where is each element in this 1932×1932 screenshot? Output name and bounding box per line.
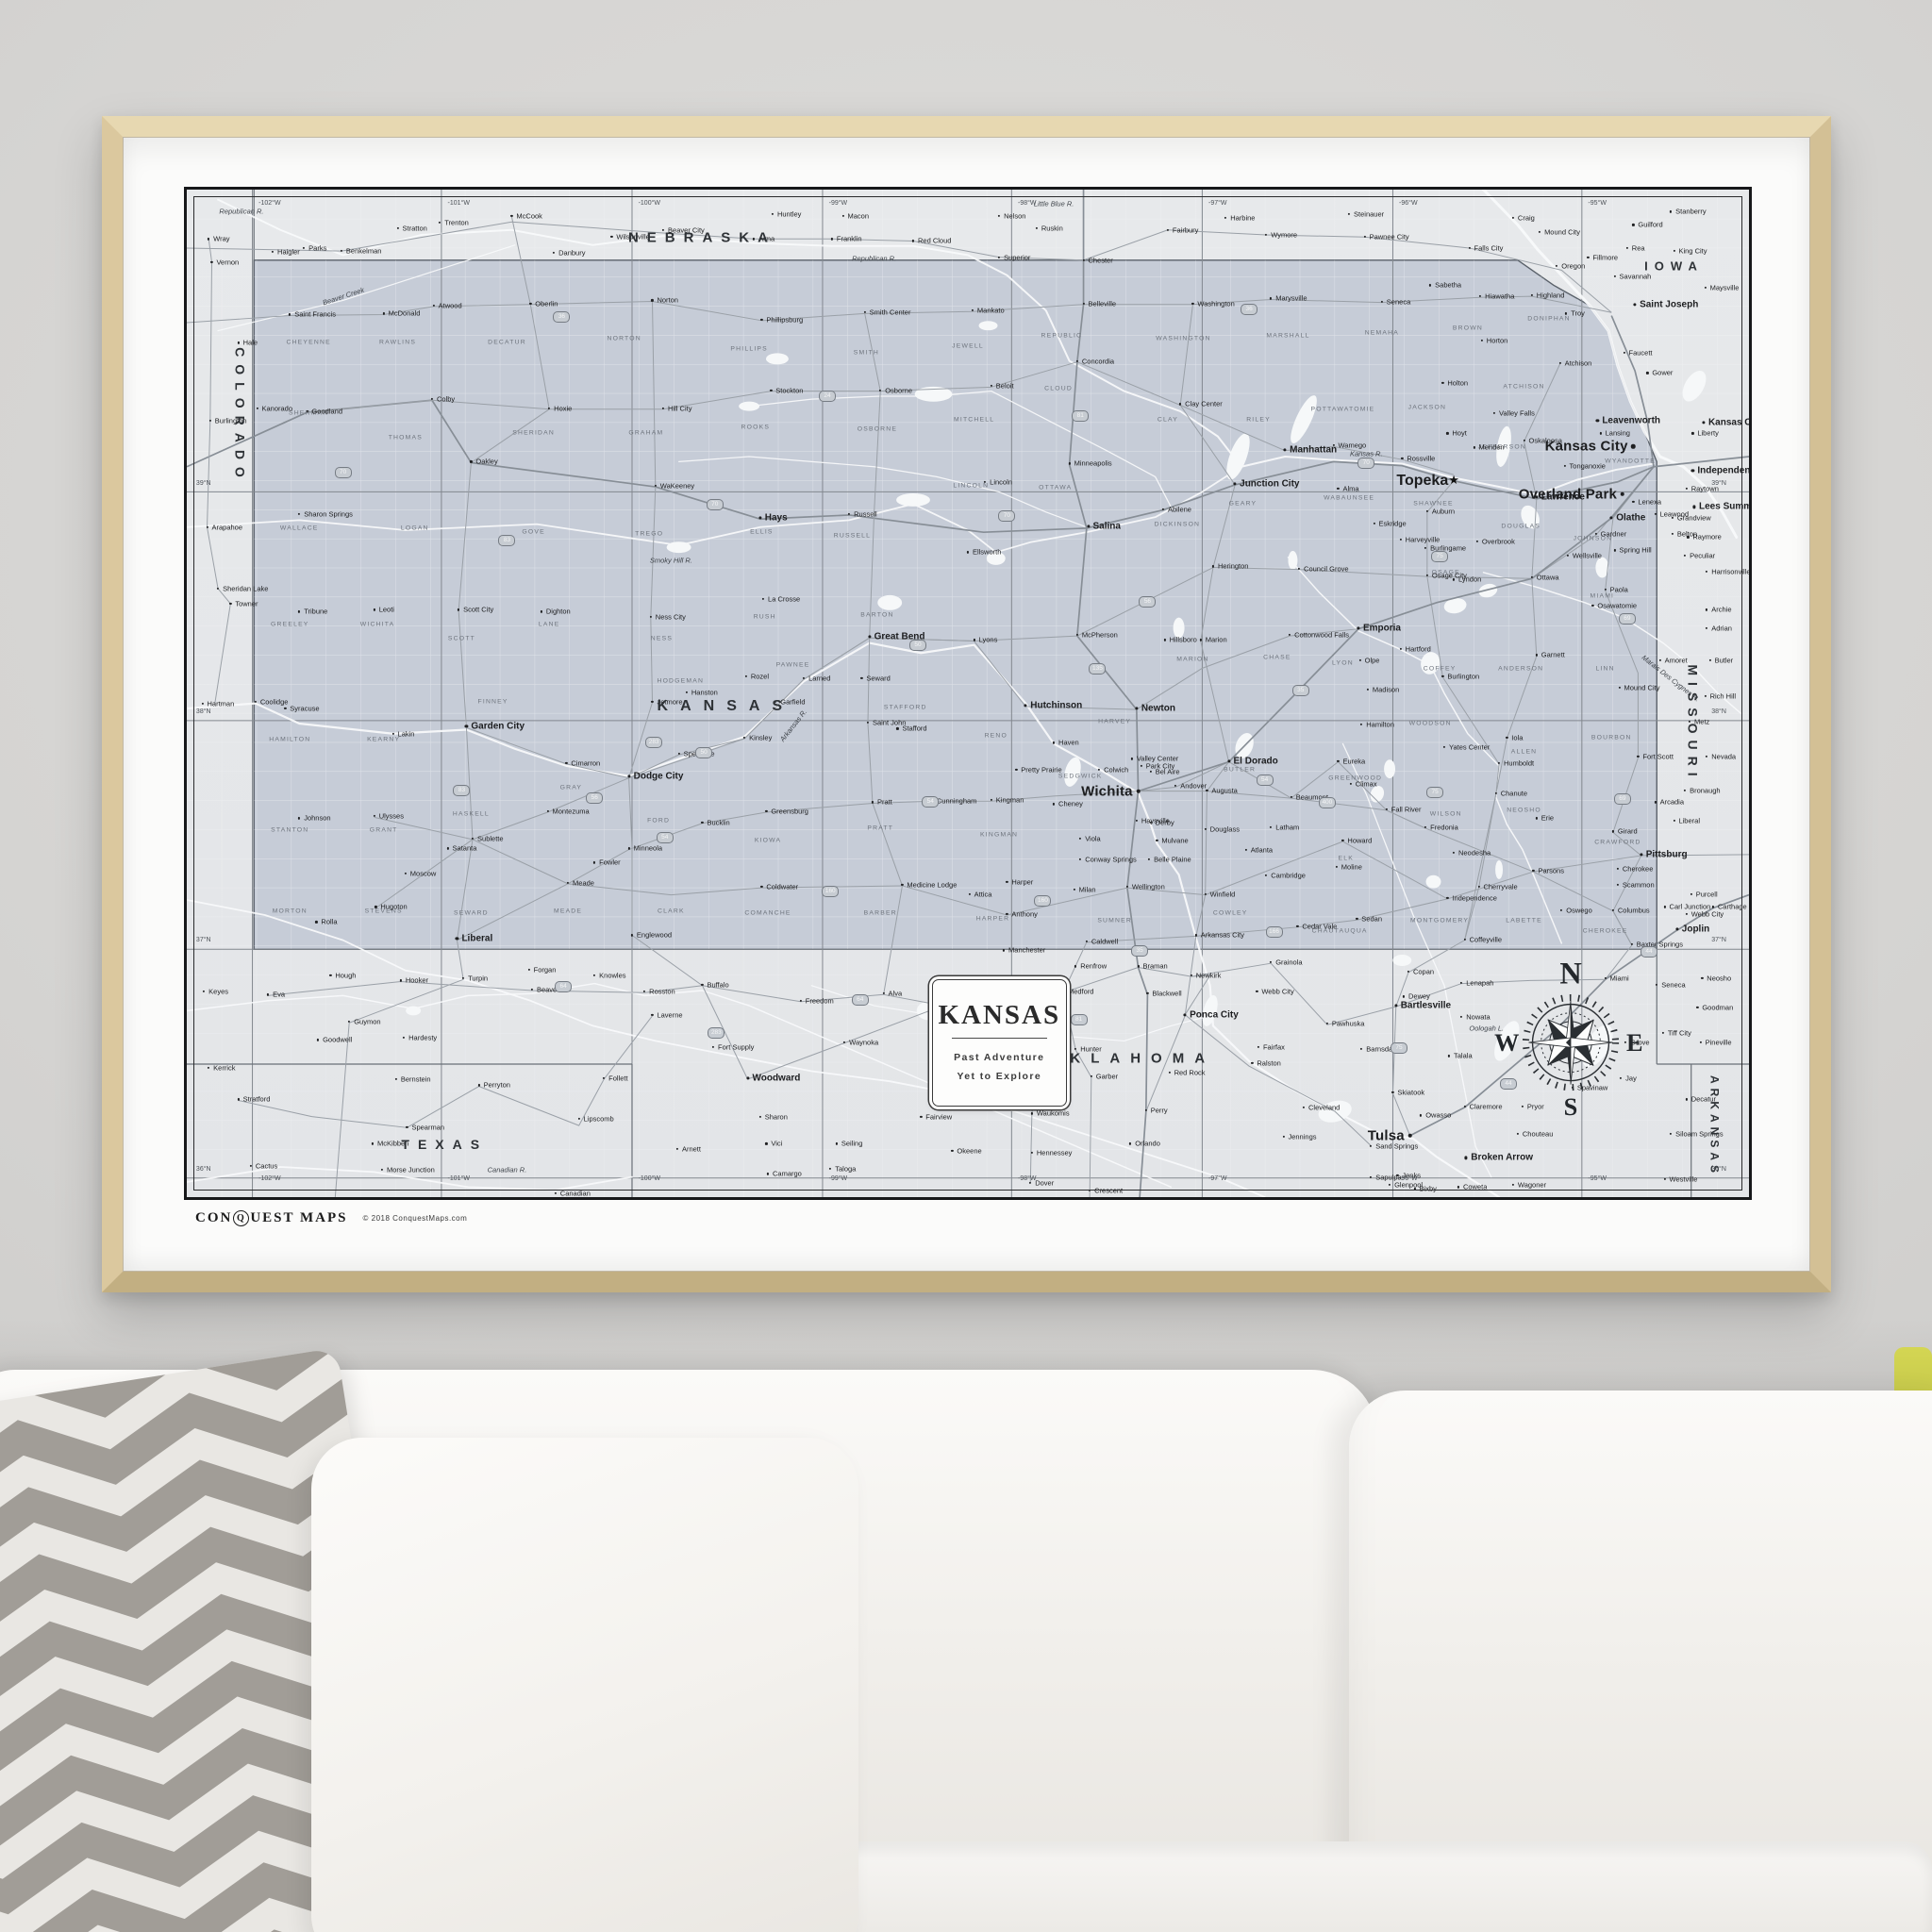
town-label: Forgan: [534, 965, 557, 974]
town-label: Hoyt: [1452, 429, 1466, 438]
town-label: Erie: [1541, 814, 1554, 823]
town-label: Owasso: [1425, 1111, 1451, 1120]
county-label: FINNEY: [478, 698, 508, 705]
county-label: NORTON: [607, 336, 641, 342]
town-label: Broken Arrow: [1471, 1153, 1533, 1163]
county-label: LINN: [1595, 666, 1614, 673]
town-label: Nelson: [1004, 211, 1025, 220]
town-label: Caldwell: [1091, 937, 1118, 945]
highway-shield: 56: [586, 792, 603, 804]
town-label: Hugoton: [380, 903, 407, 911]
town-label: Chouteau: [1523, 1129, 1554, 1138]
highway-shield: 83: [498, 535, 515, 546]
highway-shield: 283: [708, 1027, 724, 1039]
town-label: Purcell: [1696, 890, 1718, 898]
highway-shield: 75: [1426, 787, 1443, 798]
town-label: Viola: [1085, 834, 1101, 842]
town-label: Raymore: [1692, 533, 1721, 541]
town-label: Alva: [889, 990, 903, 998]
highway-shield: 50: [909, 640, 926, 651]
town-label: Minneola: [634, 844, 662, 853]
county-label: MITCHELL: [954, 416, 994, 423]
town-label: Pretty Prairie: [1021, 766, 1061, 774]
town-label: Climax: [1356, 780, 1377, 789]
longitude-label: -99°W: [829, 200, 848, 207]
town-label: Smith Center: [870, 308, 911, 317]
town-label: Atchison: [1565, 358, 1592, 367]
title-subtitle-2: Yet to Explore: [957, 1071, 1041, 1082]
town-label: Hillsboro: [1170, 636, 1197, 644]
town-label: Dewey: [1408, 992, 1430, 1001]
town-label: Fort Scott: [1642, 753, 1674, 761]
latitude-label: 39°N: [1711, 480, 1726, 487]
town-label: Freedom: [806, 996, 834, 1005]
county-label: KIOWA: [755, 837, 781, 843]
town-label: Oskaloosa: [1529, 436, 1562, 444]
county-label: ROOKS: [741, 425, 771, 431]
town-label: Fredonia: [1430, 824, 1458, 832]
county-label: WILSON: [1430, 811, 1462, 818]
town-label: Osawatomie: [1597, 602, 1637, 610]
town-label: Salina: [1092, 521, 1120, 531]
town-label: Seiling: [841, 1140, 863, 1148]
highway-shield: 36: [553, 311, 570, 323]
town-label: Amoret: [1665, 656, 1688, 664]
town-label: Eskridge: [1379, 519, 1407, 527]
town-dot: [1621, 491, 1625, 496]
county-label: REPUBLIC: [1041, 332, 1083, 339]
town-label: Independence: [1697, 465, 1752, 475]
town-label: Norton: [657, 296, 678, 305]
town-label: Valley Falls: [1499, 409, 1535, 418]
longitude-label: -95°W: [1588, 1175, 1607, 1182]
town-label: Winfield: [1210, 890, 1236, 898]
town-label: Hutchinson: [1030, 700, 1082, 710]
longitude-label: -97°W: [1208, 1175, 1227, 1182]
town-label: Bucklin: [707, 818, 729, 826]
county-label: CHEYENNE: [286, 340, 330, 346]
highway-shield: 36: [1241, 304, 1257, 315]
town-label: Waukomis: [1037, 1109, 1070, 1118]
brand-q-icon: Q: [233, 1210, 249, 1226]
town-label: Keyes: [208, 988, 228, 996]
highway-shield: 283: [645, 737, 662, 748]
town-label: Ness City: [656, 612, 686, 621]
town-label: Fairbury: [1173, 225, 1199, 234]
county-label: ALLEN: [1511, 748, 1538, 755]
county-label: DOUGLAS: [1501, 523, 1541, 529]
town-label: Highland: [1537, 291, 1565, 300]
longitude-label: -95°W: [1588, 200, 1607, 207]
town-label: Neodesha: [1458, 848, 1491, 857]
town-label: Pineville: [1706, 1038, 1732, 1046]
county-label: CHASE: [1263, 654, 1291, 660]
town-label: Peculiar: [1690, 551, 1715, 559]
town-label: Seneca: [1387, 297, 1410, 306]
town-label: Sedan: [1361, 915, 1382, 924]
town-label: Huntley: [777, 209, 801, 218]
town-label: Scammon: [1623, 880, 1655, 889]
highway-shield: 35: [1292, 685, 1309, 696]
town-label: Marion: [1206, 636, 1227, 644]
county-label: STAFFORD: [884, 704, 927, 710]
compass-e: E: [1626, 1029, 1643, 1057]
town-label: Garber: [1096, 1072, 1118, 1080]
town-label: Pawhuska: [1332, 1020, 1365, 1028]
highway-shield: 54: [1257, 774, 1274, 786]
county-label: OSBORNE: [858, 426, 897, 433]
town-label: WaKeeney: [660, 481, 694, 490]
county-label: BUTLER: [1224, 767, 1256, 774]
town-label: Mulvane: [1161, 836, 1188, 844]
brand-meta: © 2018 ConquestMaps.com: [363, 1214, 468, 1223]
town-label: Fall River: [1391, 805, 1422, 813]
highway-shield: 64: [555, 981, 572, 992]
county-label: BOURBON: [1591, 734, 1632, 741]
town-label: Turpin: [468, 974, 488, 983]
town-label: Madison: [1373, 685, 1399, 693]
town-label: Saint Francis: [294, 310, 336, 319]
town-label: Superior: [1004, 253, 1030, 261]
town-label: Abilene: [1168, 505, 1191, 513]
town-label: Columbus: [1618, 906, 1650, 914]
town-label: Haven: [1058, 739, 1079, 747]
highway-shield: 81: [1071, 1014, 1088, 1025]
town-label: Parks: [308, 243, 326, 252]
throw-pillow: [311, 1438, 858, 1932]
town-label: Fillmore: [1592, 253, 1618, 261]
county-label: NEOSHO: [1507, 807, 1541, 813]
town-label: Beloit: [996, 382, 1014, 391]
town-label: Haysville: [1141, 816, 1170, 824]
highway-shield: 70: [1357, 458, 1374, 469]
town-label: Webb City: [1261, 988, 1293, 996]
longitude-label: -97°W: [1208, 200, 1227, 207]
town-label: Russell: [854, 509, 877, 518]
town-label: Fairview: [925, 1112, 952, 1121]
county-label: BARBER: [864, 909, 897, 916]
county-label: RILEY: [1246, 416, 1271, 423]
town-label: Garnett: [1541, 651, 1565, 659]
town-label: Braman: [1142, 962, 1167, 971]
county-label: HARVEY: [1098, 718, 1131, 724]
county-label: RENO: [985, 732, 1008, 739]
town-label: Hiawatha: [1485, 292, 1514, 301]
town-label: Hardesty: [408, 1034, 437, 1042]
town-label: Arapahoe: [211, 523, 242, 531]
town-label: Lipscomb: [584, 1114, 614, 1123]
county-label: LYON: [1332, 659, 1354, 666]
longitude-label: -102°W: [258, 200, 280, 207]
compass-w: W: [1494, 1029, 1519, 1057]
town-label: Sublette: [477, 834, 504, 842]
town-label: Oberlin: [535, 299, 558, 308]
county-label: DICKINSON: [1155, 521, 1201, 527]
latitude-label: 37°N: [1711, 937, 1726, 943]
county-label: LINCOLN: [953, 482, 989, 489]
town-label: Atwood: [439, 301, 462, 309]
town-label: Girard: [1618, 827, 1638, 836]
town-label: Stockton: [775, 386, 803, 394]
town-label: Leoti: [379, 606, 394, 614]
capital-star-icon: ★: [1448, 473, 1459, 488]
county-label: ANDERSON: [1498, 666, 1543, 673]
longitude-label: -96°W: [1399, 1175, 1418, 1182]
town-label: Gower: [1652, 369, 1673, 377]
town-label: Hennessey: [1037, 1149, 1073, 1158]
town-label: Stanberry: [1675, 208, 1707, 216]
town-label: Parsons: [1538, 866, 1564, 874]
highway-shield: 70: [335, 467, 352, 478]
highway-shield: 83: [453, 785, 470, 796]
town-label: Greensburg: [771, 807, 808, 815]
town-label: Ralston: [1257, 1058, 1280, 1067]
town-label: Mound City: [1544, 227, 1580, 236]
town-label: Coldwater: [766, 883, 798, 891]
longitude-label: -96°W: [1399, 200, 1418, 207]
town-label: Towner: [235, 599, 258, 608]
highway-shield: 81: [1072, 410, 1089, 422]
town-label: Topeka: [1396, 473, 1448, 490]
town-label: Washington: [1197, 299, 1234, 308]
county-label: HODGEMAN: [657, 678, 704, 685]
highway-shield: 35: [1131, 945, 1148, 957]
town-label: Rea: [1632, 243, 1645, 252]
town-label: Morse Junction: [387, 1166, 435, 1174]
town-label: Latham: [1275, 824, 1299, 832]
county-label: SMITH: [854, 350, 879, 357]
town-label: Stratford: [243, 1095, 271, 1104]
county-label: JACKSON: [1408, 404, 1447, 410]
highway-shield: 75: [1431, 551, 1448, 562]
town-label: Butler: [1715, 656, 1734, 664]
town-label: McPherson: [1082, 631, 1118, 640]
town-label: Jennings: [1288, 1132, 1316, 1141]
town-label: Mankato: [977, 307, 1005, 315]
town-label: Westville: [1670, 1174, 1698, 1183]
town-label: Hartman: [208, 699, 235, 708]
town-label: Conway Springs: [1085, 856, 1137, 864]
town-label: Cedar Vale: [1302, 922, 1337, 930]
town-label: Sharon Springs: [304, 509, 353, 518]
town-label: Concordia: [1082, 357, 1114, 365]
town-label: Manhattan: [1290, 444, 1337, 455]
town-label: Arcadia: [1660, 798, 1684, 807]
town-label: Waynoka: [849, 1038, 878, 1046]
longitude-label: -100°W: [639, 200, 660, 207]
town-label: Eureka: [1342, 757, 1365, 765]
county-label: ELK: [1339, 856, 1354, 862]
town-label: Sabetha: [1435, 281, 1461, 290]
highway-shield: 160: [822, 886, 839, 897]
town-label: Hanston: [691, 688, 718, 696]
county-label: PRATT: [867, 825, 893, 832]
highway-shield: 69: [1619, 613, 1636, 625]
town-label: Auburn: [1432, 507, 1455, 515]
county-label: MORTON: [273, 908, 308, 914]
town-label: Satanta: [453, 844, 477, 853]
county-label: COMANCHE: [744, 909, 791, 916]
town-label: Macon: [847, 211, 869, 220]
town-label: Laverne: [657, 1010, 682, 1019]
highway-shield: 135: [1089, 663, 1106, 675]
town-label: El Dorado: [1234, 756, 1278, 766]
county-label: NEMAHA: [1365, 329, 1399, 336]
highway-shield: 69: [1614, 793, 1631, 805]
town-label: Red Rock: [1174, 1068, 1206, 1076]
town-label: Attica: [974, 890, 992, 898]
town-label: Dodge City: [634, 771, 684, 781]
town-dot: [1631, 444, 1636, 449]
county-label: PAWNEE: [776, 662, 810, 669]
brand-name: CONQUEST MAPS: [195, 1210, 348, 1226]
town-label: Independence: [1452, 893, 1497, 902]
town-label: Red Cloud: [918, 237, 951, 245]
town-label: Cunningham: [937, 797, 977, 806]
county-label: CRAWFORD: [1594, 840, 1641, 846]
county-label: BARTON: [860, 611, 893, 618]
town-label: Osage City: [1432, 572, 1467, 580]
town-label: Leavenworth: [1602, 415, 1660, 425]
state-label: NEBRASKA: [628, 230, 776, 246]
town-label: Marysville: [1275, 294, 1307, 303]
town-label: Follett: [608, 1074, 627, 1082]
town-label: Saint Joseph: [1640, 299, 1698, 309]
town-label: Savannah: [1620, 272, 1652, 280]
county-label: ATCHISON: [1503, 384, 1544, 391]
county-label: HAMILTON: [269, 737, 310, 743]
highway-shield: 50: [695, 747, 712, 758]
town-label: Grandview: [1677, 514, 1711, 523]
latitude-label: 39°N: [196, 480, 211, 487]
town-label: Milan: [1079, 886, 1096, 894]
town-label: Crescent: [1094, 1186, 1123, 1194]
town-label: Oregon: [1561, 262, 1585, 271]
town-label: Nevada: [1711, 753, 1736, 761]
county-label: KEARNY: [367, 737, 400, 743]
town-label: Okeene: [957, 1146, 981, 1155]
town-label: Garden City: [471, 722, 525, 732]
town-label: Syracuse: [290, 705, 319, 713]
county-label: MARSHALL: [1266, 332, 1309, 339]
county-label: GREELEY: [271, 622, 309, 628]
county-label: MONTGOMERY: [1410, 918, 1469, 924]
longitude-label: -98°W: [1018, 1175, 1037, 1182]
county-label: DECATUR: [488, 340, 526, 346]
town-label: Atlanta: [1251, 845, 1273, 854]
highway-shield: 160: [1034, 895, 1051, 907]
county-label: MIAMI: [1591, 593, 1615, 600]
county-label: LANE: [539, 622, 560, 628]
town-label: Bel Aire: [1156, 768, 1180, 776]
town-label: Lawrence: [1541, 491, 1585, 502]
town-label: Adrian: [1711, 624, 1732, 632]
highway-shield: 54: [922, 796, 939, 808]
town-label: Goodwell: [323, 1036, 352, 1044]
county-label: CLAY: [1158, 416, 1178, 423]
county-label: WASHINGTON: [1156, 336, 1210, 342]
town-label: Perryton: [484, 1081, 510, 1090]
town-label: Ulysses: [379, 812, 404, 821]
county-label: SEDGWICK: [1058, 773, 1103, 779]
town-label: Maysville: [1710, 283, 1740, 291]
town-label: Emporia: [1363, 623, 1401, 633]
frame-mat: KANSAS Past Adventure Yet to Explore: [123, 137, 1810, 1272]
town-label: Woodward: [752, 1073, 800, 1083]
state-label: IOWA: [1644, 259, 1704, 274]
town-label: Kinsley: [749, 733, 772, 741]
town-label: Vici: [771, 1140, 782, 1148]
town-label: Cleveland: [1308, 1103, 1340, 1111]
county-label: GRAY: [560, 785, 583, 791]
town-label: Andover: [1180, 782, 1207, 791]
river-label: Republican R.: [852, 254, 896, 262]
town-label: Gardner: [1601, 530, 1627, 539]
town-label: Paola: [1610, 585, 1628, 593]
town-label: Danbury: [558, 249, 585, 258]
town-label: Tonganoxie: [1570, 461, 1606, 470]
latitude-label: 38°N: [196, 708, 211, 715]
town-label: Harper: [1011, 877, 1033, 886]
town-label: Carthage: [1718, 903, 1747, 911]
town-label: Cimarron: [571, 758, 600, 767]
latitude-label: 36°N: [196, 1166, 211, 1173]
town-label: Grainola: [1275, 958, 1302, 967]
town-label: Haigler: [277, 248, 300, 257]
town-label: Vernon: [216, 258, 239, 266]
town-label: Fowler: [599, 858, 621, 867]
town-label: Kansas City: [1708, 417, 1752, 427]
county-label: SHERIDAN: [512, 430, 555, 437]
title-divider: [952, 1038, 1047, 1039]
title-box: KANSAS Past Adventure Yet to Explore: [932, 979, 1067, 1106]
town-label: Hale: [243, 339, 258, 347]
town-label: Moscow: [410, 870, 437, 878]
town-label: Ponca City: [1190, 1009, 1239, 1020]
town-label: Wellington: [1132, 883, 1165, 891]
town-label: Trenton: [444, 219, 469, 227]
town-label: Sharon: [765, 1112, 788, 1121]
town-label: Spearman: [411, 1124, 444, 1132]
town-label: Humboldt: [1504, 758, 1534, 767]
county-label: HARPER: [976, 916, 1010, 923]
town-label: Craig: [1518, 213, 1535, 222]
river-label: Smoky Hill R.: [650, 557, 692, 565]
town-label: Burlington: [1447, 672, 1479, 680]
town-label: Tribune: [304, 608, 327, 616]
town-label: Hamilton: [1366, 721, 1394, 729]
highway-shield: 70: [707, 499, 724, 510]
town-label: Goodman: [1702, 1004, 1733, 1012]
town-label: Meriden: [1479, 443, 1505, 452]
town-label: Wichita: [1081, 783, 1133, 799]
town-label: Clay Center: [1185, 400, 1223, 408]
town-label: Howard: [1347, 836, 1372, 844]
town-label: Hays: [765, 513, 788, 524]
map-canvas: KANSAS Past Adventure Yet to Explore: [184, 187, 1752, 1200]
town-label: Rich Hill: [1710, 692, 1737, 701]
compass-rose: N E S W: [1490, 955, 1652, 1117]
highway-shield: 400: [1319, 797, 1336, 808]
town-label: Montezuma: [553, 807, 590, 815]
latitude-label: 36°N: [1711, 1166, 1726, 1173]
latitude-label: 38°N: [1711, 708, 1726, 715]
state-label: COLORADO: [232, 347, 247, 485]
highway-shield: 24: [819, 391, 836, 402]
town-label: Oakley: [475, 458, 497, 466]
town-label: Steinauer: [1354, 209, 1384, 218]
county-label: OTTAWA: [1039, 485, 1072, 491]
